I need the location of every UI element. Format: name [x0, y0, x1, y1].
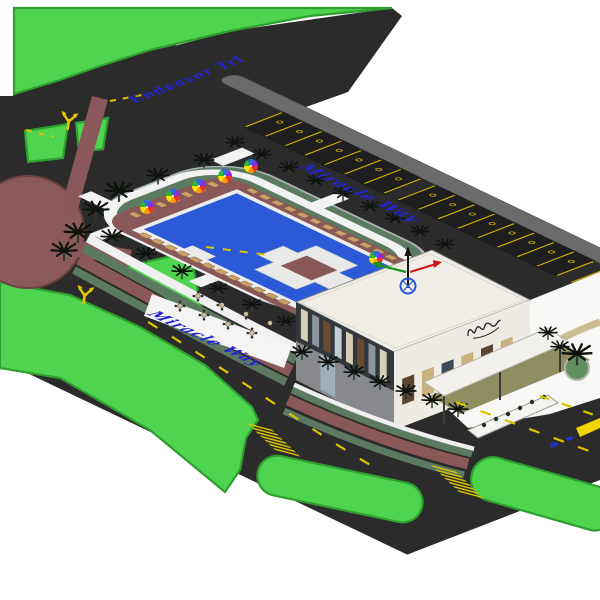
beach-umbrella-icon	[218, 169, 232, 183]
beach-umbrella-icon	[192, 179, 206, 193]
site-plan-render: Endeavor Trl Miracle Way Miracle Way	[0, 0, 600, 600]
canvas-margin-top	[0, 0, 600, 7]
beach-umbrella-icon	[244, 159, 258, 173]
beach-umbrella-icon	[166, 189, 180, 203]
grass-island	[25, 124, 68, 162]
beach-umbrella-icon	[140, 200, 154, 214]
canvas-margin-left	[0, 0, 13, 96]
